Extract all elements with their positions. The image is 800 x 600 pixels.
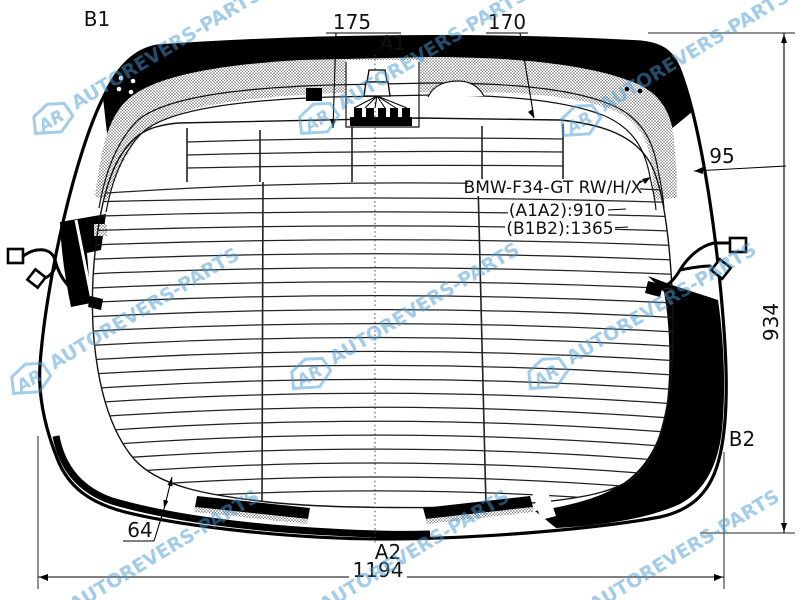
dim-934-text: 934	[759, 303, 783, 341]
rear-window-diagram: B1 A1 175 170 95 934 64 BMW-F34-GT RW/H/…	[0, 0, 800, 600]
terminal-bar	[350, 117, 412, 126]
dim-95-line	[694, 166, 786, 171]
trim-tab	[306, 88, 322, 101]
part-a1a2: (A1A2):910	[509, 201, 605, 221]
label-b1: B1	[84, 7, 110, 31]
dim-95-text: 95	[709, 144, 734, 168]
left-connector-diamond	[27, 269, 45, 287]
part-b1b2: (B1B2):1365	[506, 219, 613, 239]
dim-175-text: 175	[333, 10, 371, 34]
part-number: BMW-F34-GT RW/H/X	[464, 178, 643, 198]
label-a1: A1	[380, 31, 406, 55]
diagram-canvas: B1 A1 175 170 95 934 64 BMW-F34-GT RW/H/…	[0, 0, 800, 600]
left-connector-square	[8, 249, 23, 263]
label-b2: B2	[729, 427, 755, 451]
dim-64-text: 64	[127, 518, 152, 542]
busbar-vertical-left	[262, 182, 263, 504]
